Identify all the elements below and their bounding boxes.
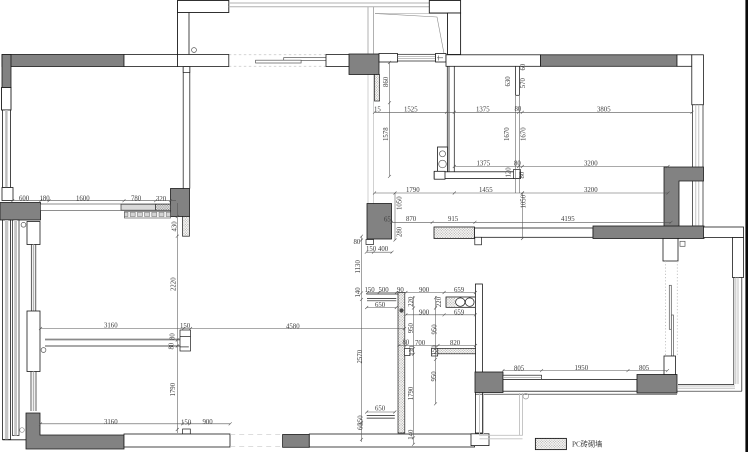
svg-text:780: 780 [131,196,142,203]
svg-text:60: 60 [520,63,527,70]
svg-text:805: 805 [639,365,650,372]
svg-text:150: 150 [366,246,377,253]
svg-text:220: 220 [436,296,443,307]
svg-text:3160: 3160 [104,322,118,329]
svg-text:80: 80 [354,239,361,246]
svg-text:915: 915 [448,216,459,223]
svg-text:870: 870 [406,216,417,223]
svg-text:1375: 1375 [476,106,490,113]
svg-text:630: 630 [505,76,512,87]
svg-text:15: 15 [374,106,381,113]
svg-text:1670: 1670 [520,127,527,141]
svg-text:150: 150 [181,419,192,426]
svg-text:650: 650 [375,302,386,309]
svg-text:220: 220 [408,296,415,307]
svg-text:65: 65 [384,216,391,223]
svg-text:3200: 3200 [584,160,598,167]
svg-text:180: 180 [40,196,51,203]
svg-text:900: 900 [419,309,430,316]
svg-text:2570: 2570 [357,349,364,363]
svg-text:PC砖砌墙: PC砖砌墙 [572,440,602,449]
svg-text:900: 900 [203,419,214,426]
svg-text:1950: 1950 [575,365,589,372]
svg-text:1670: 1670 [504,127,511,141]
svg-text:4195: 4195 [561,216,575,223]
svg-text:280: 280 [397,226,404,237]
svg-text:1790: 1790 [170,382,177,396]
svg-text:659: 659 [454,287,465,294]
svg-text:1600: 1600 [76,195,90,202]
svg-text:80: 80 [403,340,410,347]
svg-text:320: 320 [156,196,167,203]
svg-text:1790: 1790 [408,386,415,400]
svg-text:140: 140 [408,429,415,440]
svg-text:1050: 1050 [397,196,404,210]
svg-text:659: 659 [454,309,465,316]
svg-text:140: 140 [355,287,362,298]
svg-text:60: 60 [358,423,365,430]
svg-text:650: 650 [375,405,386,412]
svg-text:1578: 1578 [383,127,390,141]
svg-text:90: 90 [397,287,404,294]
svg-text:80: 80 [519,171,526,178]
svg-text:600: 600 [19,195,30,202]
svg-text:950: 950 [432,324,439,335]
svg-text:80: 80 [170,333,177,340]
svg-text:860: 860 [383,76,390,87]
svg-text:430: 430 [172,221,179,232]
svg-text:2220: 2220 [171,277,178,291]
svg-text:3200: 3200 [584,187,598,194]
svg-text:3160: 3160 [104,419,118,426]
svg-text:120: 120 [506,167,513,178]
svg-text:3805: 3805 [597,106,611,113]
svg-text:700: 700 [415,340,426,347]
svg-text:570: 570 [520,78,527,89]
svg-text:1790: 1790 [406,187,420,194]
svg-text:1130: 1130 [355,260,362,274]
svg-text:1375: 1375 [477,160,491,167]
svg-text:1050: 1050 [521,194,528,208]
svg-text:950: 950 [431,371,438,382]
svg-text:500: 500 [379,287,390,294]
svg-text:1455: 1455 [479,187,493,194]
svg-text:150: 150 [180,323,191,330]
svg-text:120: 120 [409,345,416,356]
svg-text:80: 80 [514,160,521,167]
svg-text:400: 400 [378,246,389,253]
svg-text:150: 150 [432,345,439,356]
svg-text:80: 80 [169,342,176,349]
svg-text:1525: 1525 [404,106,418,113]
svg-text:805: 805 [514,365,525,372]
svg-text:900: 900 [419,287,430,294]
svg-text:150: 150 [365,287,376,294]
svg-text:950: 950 [408,323,415,334]
svg-text:820: 820 [450,340,461,347]
svg-text:80: 80 [515,106,522,113]
svg-text:4580: 4580 [286,323,300,330]
